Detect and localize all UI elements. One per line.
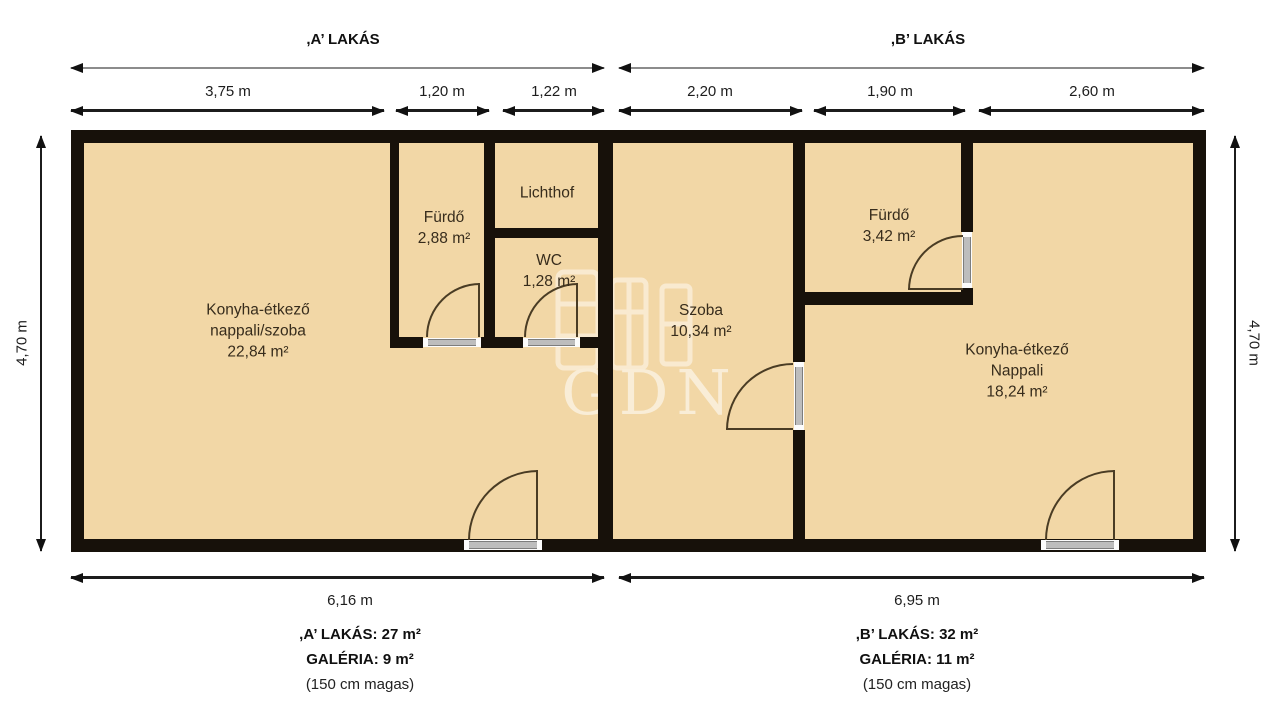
door-leaf-entry-b [1113,470,1115,540]
door-leaf-bath-b [908,288,963,290]
dim-arrow-a1 [71,109,384,112]
threshold-entry-b [1041,540,1119,550]
room-label-lichthof: Lichthof [520,183,574,204]
summary-b-height: (150 cm magas) [863,676,971,693]
room-label-szoba: Szoba 10,34 m² [670,300,731,342]
dim-label-left-height: 4,70 m [13,316,32,370]
room-name: Fürdő [418,207,471,228]
wall-bath-a-south-2 [481,337,523,348]
room-name: Lichthof [520,183,574,204]
wall-szoba-east-upper [793,143,805,362]
dim-label-a3: 1,22 m [531,83,577,100]
wall-szoba-east-lower [793,430,805,552]
dim-arrow-left-height [40,136,42,551]
dim-arrow-b-bottom [619,576,1204,579]
room-area: 1,28 m² [523,271,576,292]
dim-label-b-width: 6,95 m [894,592,940,609]
dim-arrow-b3 [979,109,1204,112]
dim-arrow-b2 [814,109,965,112]
room-label-bath-b: Fürdő 3,42 m² [863,205,916,247]
wall-bath-b-south [793,292,973,305]
door-leaf-szoba [726,428,793,430]
room-name: Konyha-étkező [206,300,309,321]
threshold-bath-b [962,232,972,288]
room-area: 18,24 m² [965,382,1068,403]
wall-bath-a-south-1 [390,337,423,348]
wall-bath-a-east [484,143,495,348]
room-label-bath-a: Fürdő 2,88 m² [418,207,471,249]
summary-b-area: ,B’ LAKÁS: 32 m² [856,626,979,643]
dim-arrow-a3 [503,109,604,112]
room-area: 22,84 m² [206,342,309,363]
wall-bath-b-east-lower [961,288,973,305]
summary-b-gallery: GALÉRIA: 11 m² [859,651,974,668]
room-name-2: nappali/szoba [206,321,309,342]
wall-bath-b-east-upper [961,143,973,232]
dim-arrow-b1 [619,109,802,112]
floorplan-page: ,A’ LAKÁS ,B’ LAKÁS 3,75 m 1,20 m 1,22 m… [0,0,1280,720]
door-leaf-bath-a [478,283,480,337]
room-name: Szoba [670,300,731,321]
dim-arrow-a2 [396,109,489,112]
dim-arrow-b-total [619,67,1204,69]
door-leaf-entry-a [536,470,538,540]
room-label-wc: WC 1,28 m² [523,250,576,292]
dim-label-b3: 2,60 m [1069,83,1115,100]
dim-label-b1: 2,20 m [687,83,733,100]
room-label-kitchen-a: Konyha-étkező nappali/szoba 22,84 m² [206,300,309,363]
threshold-wc [523,338,580,347]
room-area: 2,88 m² [418,228,471,249]
threshold-szoba [794,362,804,430]
summary-a-height: (150 cm magas) [306,676,414,693]
dim-arrow-a-bottom [71,576,604,579]
door-leaf-wc [576,283,578,337]
wall-wc-south [580,337,598,348]
dim-arrow-a-total [71,67,604,69]
room-area: 3,42 m² [863,226,916,247]
threshold-entry-a [464,540,542,550]
wall-bath-a-west [390,143,399,348]
dim-arrow-right-height [1234,136,1236,551]
room-name-2: Nappali [965,361,1068,382]
summary-a-area: ,A’ LAKÁS: 27 m² [299,626,421,643]
apartment-b-title: ,B’ LAKÁS [891,31,965,48]
summary-a-gallery: GALÉRIA: 9 m² [306,651,414,668]
room-area: 10,34 m² [670,321,731,342]
dim-label-a-width: 6,16 m [327,592,373,609]
room-name: Konyha-étkező [965,340,1068,361]
dim-label-right-height: 4,70 m [1245,316,1264,370]
dim-label-a2: 1,20 m [419,83,465,100]
threshold-bath-a [423,338,481,347]
room-label-kitchen-b: Konyha-étkező Nappali 18,24 m² [965,340,1068,403]
dim-label-a1: 3,75 m [205,83,251,100]
wall-lichthof-wc-divider [484,228,598,238]
wall-center-divider [598,130,613,552]
dim-label-b2: 1,90 m [867,83,913,100]
room-name: Fürdő [863,205,916,226]
room-name: WC [523,250,576,271]
apartment-a-title: ,A’ LAKÁS [306,31,379,48]
watermark-text: GDN [561,356,739,429]
